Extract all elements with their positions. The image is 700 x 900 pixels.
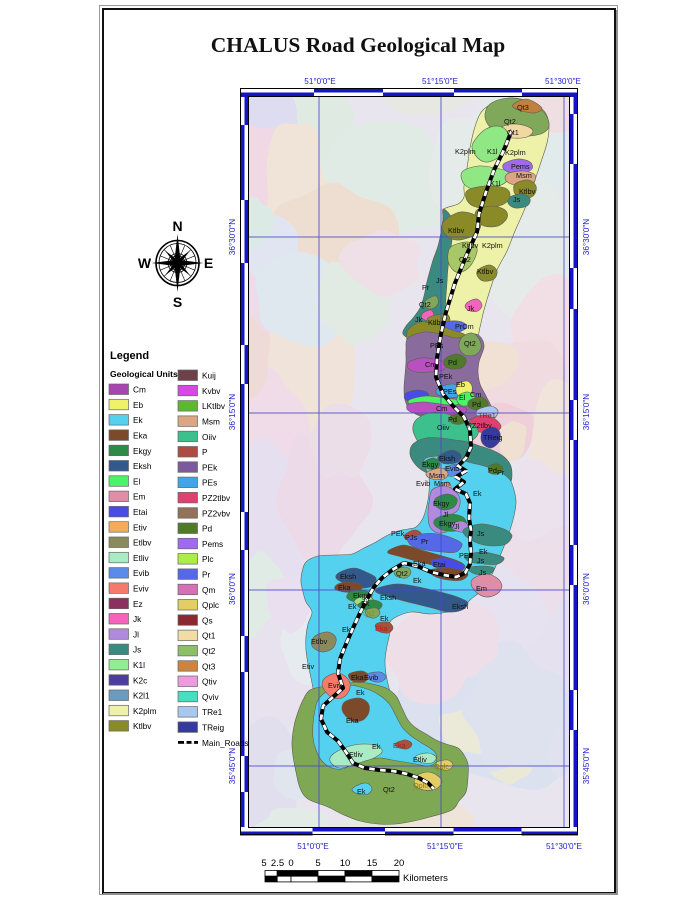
- svg-text:Eviv: Eviv: [328, 681, 342, 690]
- svg-text:P: P: [202, 447, 208, 457]
- svg-text:Ek: Ek: [372, 742, 381, 751]
- svg-text:Oiiv: Oiiv: [202, 432, 217, 442]
- svg-text:Qt1: Qt1: [202, 631, 216, 641]
- svg-text:Jl: Jl: [133, 629, 139, 639]
- svg-text:36°15'0"N: 36°15'0"N: [582, 394, 591, 431]
- svg-text:Eka: Eka: [133, 431, 148, 441]
- svg-text:Ktlbv: Ktlbv: [428, 318, 445, 327]
- svg-text:Ek: Ek: [133, 415, 144, 425]
- svg-text:Ktlbv: Ktlbv: [448, 226, 465, 235]
- svg-text:K1l: K1l: [133, 660, 145, 670]
- svg-text:Etiv: Etiv: [302, 662, 315, 671]
- svg-text:Msm: Msm: [434, 479, 450, 488]
- svg-text:Eka: Eka: [351, 673, 365, 682]
- svg-text:Pr: Pr: [422, 283, 430, 292]
- svg-text:TReig: TReig: [483, 433, 502, 442]
- svg-text:Pr: Pr: [497, 468, 505, 477]
- svg-text:Ez: Ez: [133, 599, 143, 609]
- svg-text:K2l1: K2l1: [133, 691, 150, 701]
- svg-text:Cm: Cm: [470, 390, 481, 399]
- svg-text:PrCm: PrCm: [455, 322, 474, 331]
- svg-text:36°30'0"N: 36°30'0"N: [582, 219, 591, 256]
- svg-text:Cm: Cm: [133, 385, 146, 395]
- svg-text:Msm: Msm: [202, 417, 220, 427]
- svg-text:2.5: 2.5: [271, 858, 284, 869]
- svg-text:Etlbv: Etlbv: [311, 637, 328, 646]
- svg-text:Eka: Eka: [338, 583, 352, 592]
- svg-text:0: 0: [288, 858, 293, 869]
- svg-text:LKtlbv: LKtlbv: [202, 401, 226, 411]
- svg-text:Ek: Ek: [479, 547, 488, 556]
- svg-text:Ek: Ek: [380, 614, 389, 623]
- svg-text:Eksh: Eksh: [133, 461, 152, 471]
- svg-text:Js: Js: [133, 645, 141, 655]
- svg-text:Ek: Ek: [473, 489, 482, 498]
- svg-text:Eviv: Eviv: [133, 584, 150, 594]
- svg-text:Main_Roads: Main_Roads: [202, 738, 249, 748]
- svg-text:K1l: K1l: [490, 179, 501, 188]
- svg-text:TRe1: TRe1: [202, 707, 223, 717]
- svg-text:Qt2: Qt2: [504, 117, 516, 126]
- svg-text:Ekgy: Ekgy: [433, 499, 450, 508]
- svg-text:Qt3: Qt3: [517, 103, 529, 112]
- svg-text:Js: Js: [513, 195, 521, 204]
- svg-text:5: 5: [261, 858, 266, 869]
- svg-text:Pems: Pems: [202, 539, 223, 549]
- svg-text:Etliv: Etliv: [413, 755, 427, 764]
- svg-text:15: 15: [367, 858, 378, 869]
- svg-text:El: El: [459, 393, 466, 402]
- svg-text:PEs: PEs: [202, 478, 217, 488]
- svg-text:Ktlbv: Ktlbv: [462, 241, 479, 250]
- svg-text:Plc: Plc: [202, 554, 214, 564]
- svg-text:Ktlbv: Ktlbv: [519, 187, 536, 196]
- svg-text:Jk: Jk: [415, 315, 423, 324]
- svg-text:Geological Units: Geological Units: [110, 369, 178, 379]
- svg-text:51°30'0"E: 51°30'0"E: [545, 77, 582, 86]
- svg-text:Ktlbv: Ktlbv: [477, 267, 494, 276]
- svg-text:N: N: [172, 218, 182, 234]
- svg-text:Pems: Pems: [511, 162, 530, 171]
- svg-text:Eka: Eka: [393, 741, 407, 750]
- svg-text:5: 5: [315, 858, 320, 869]
- svg-text:Jl: Jl: [454, 522, 460, 531]
- svg-text:Qt1: Qt1: [507, 128, 519, 137]
- svg-text:Eka: Eka: [413, 559, 427, 568]
- svg-text:PEs: PEs: [443, 387, 457, 396]
- svg-text:Eka: Eka: [375, 624, 389, 633]
- svg-text:Qs: Qs: [202, 615, 213, 625]
- svg-text:Em: Em: [133, 492, 146, 502]
- svg-text:Qt2: Qt2: [396, 569, 408, 578]
- svg-text:Eksh: Eksh: [452, 602, 468, 611]
- svg-text:35°45'0"N: 35°45'0"N: [582, 748, 591, 785]
- svg-text:PEs: PEs: [430, 341, 444, 350]
- svg-text:Cm: Cm: [425, 360, 436, 369]
- svg-text:Legend: Legend: [110, 350, 149, 362]
- svg-text:Kuij: Kuij: [202, 371, 216, 381]
- svg-text:Kvbv: Kvbv: [202, 386, 221, 396]
- svg-text:Etlbv: Etlbv: [133, 538, 152, 548]
- svg-text:Js: Js: [436, 276, 444, 285]
- svg-text:51°15'0"E: 51°15'0"E: [422, 77, 459, 86]
- svg-text:Qt2: Qt2: [202, 646, 216, 656]
- svg-text:S: S: [173, 294, 182, 310]
- svg-text:Ek: Ek: [348, 602, 357, 611]
- svg-text:Pd: Pd: [488, 466, 497, 475]
- svg-text:Js: Js: [479, 568, 487, 577]
- svg-text:Ktlbv: Ktlbv: [133, 721, 152, 731]
- svg-text:Eka: Eka: [346, 716, 360, 725]
- svg-text:Evib: Evib: [416, 479, 430, 488]
- svg-text:51°0'0"E: 51°0'0"E: [304, 77, 336, 86]
- svg-text:Evib: Evib: [364, 673, 378, 682]
- svg-text:K2plm: K2plm: [455, 147, 476, 156]
- svg-text:Qviv: Qviv: [202, 692, 219, 702]
- svg-text:Ek: Ek: [361, 599, 370, 608]
- svg-text:Ek: Ek: [342, 625, 351, 634]
- svg-text:Pd: Pd: [448, 358, 457, 367]
- svg-text:K2plm: K2plm: [482, 241, 503, 250]
- svg-text:Pd: Pd: [472, 400, 481, 409]
- svg-text:E: E: [204, 255, 213, 271]
- svg-text:Kilometers: Kilometers: [403, 873, 448, 884]
- svg-text:Qt2: Qt2: [459, 255, 471, 264]
- svg-text:PZ2vbv: PZ2vbv: [202, 508, 231, 518]
- svg-text:Js: Js: [477, 529, 485, 538]
- svg-text:Ek: Ek: [357, 787, 366, 796]
- svg-text:Ek: Ek: [356, 688, 365, 697]
- svg-text:TReig: TReig: [202, 723, 225, 733]
- svg-text:51°30'0"E: 51°30'0"E: [546, 842, 583, 851]
- svg-text:PZ2tlbv: PZ2tlbv: [467, 421, 492, 430]
- svg-text:Jk: Jk: [467, 304, 475, 313]
- svg-text:36°0'0"N: 36°0'0"N: [582, 573, 591, 605]
- svg-text:Pd: Pd: [448, 415, 457, 424]
- svg-text:Etai: Etai: [433, 560, 446, 569]
- svg-text:Qplc: Qplc: [434, 762, 449, 771]
- svg-text:Eksh: Eksh: [380, 593, 396, 602]
- svg-text:Ekgy: Ekgy: [422, 460, 439, 469]
- svg-text:Pr: Pr: [421, 537, 429, 546]
- svg-text:20: 20: [394, 858, 405, 869]
- svg-text:Cm: Cm: [436, 404, 447, 413]
- svg-text:Etliv: Etliv: [133, 553, 150, 563]
- svg-text:Evib: Evib: [133, 568, 150, 578]
- svg-text:Pd: Pd: [202, 524, 213, 534]
- svg-text:Etai: Etai: [133, 507, 147, 517]
- svg-text:K2plm: K2plm: [133, 706, 157, 716]
- svg-text:Jk: Jk: [133, 614, 142, 624]
- svg-text:Ekgy: Ekgy: [133, 446, 152, 456]
- svg-text:Qt2: Qt2: [363, 609, 375, 618]
- svg-text:Qt2: Qt2: [383, 785, 395, 794]
- svg-text:PZ2tlbv: PZ2tlbv: [202, 493, 231, 503]
- svg-text:10: 10: [340, 858, 351, 869]
- svg-text:PEk: PEk: [439, 372, 453, 381]
- svg-text:Qt2: Qt2: [464, 339, 476, 348]
- svg-text:Oiiv: Oiiv: [437, 423, 450, 432]
- svg-text:Qt3: Qt3: [202, 661, 216, 671]
- svg-text:Eb: Eb: [133, 400, 144, 410]
- svg-text:Msm: Msm: [516, 171, 532, 180]
- svg-text:Etiv: Etiv: [133, 522, 148, 532]
- svg-text:Etliv: Etliv: [349, 750, 363, 759]
- svg-text:TRe1: TRe1: [478, 411, 496, 420]
- svg-text:K2plm: K2plm: [505, 148, 526, 157]
- svg-text:PEk: PEk: [202, 462, 218, 472]
- svg-text:Qtiv: Qtiv: [202, 677, 218, 687]
- svg-text:Eb: Eb: [456, 380, 465, 389]
- svg-text:Eksh: Eksh: [340, 572, 356, 581]
- svg-text:K2c: K2c: [133, 675, 147, 685]
- svg-text:Qt2: Qt2: [419, 300, 431, 309]
- svg-text:W: W: [138, 255, 152, 271]
- svg-text:Evib: Evib: [445, 464, 459, 473]
- svg-text:Qm: Qm: [202, 585, 215, 595]
- svg-text:Js: Js: [477, 556, 485, 565]
- svg-text:Ek: Ek: [413, 576, 422, 585]
- svg-text:PEs: PEs: [459, 551, 473, 560]
- svg-text:Qplc: Qplc: [202, 600, 219, 610]
- svg-text:Em: Em: [476, 584, 487, 593]
- svg-text:Jl: Jl: [443, 510, 449, 519]
- svg-text:PEk: PEk: [391, 529, 405, 538]
- svg-text:El: El: [133, 476, 141, 486]
- svg-text:Qplc: Qplc: [413, 781, 428, 790]
- svg-text:Pr: Pr: [202, 570, 211, 580]
- svg-text:PJs: PJs: [405, 533, 418, 542]
- svg-text:Eksh: Eksh: [439, 454, 455, 463]
- svg-text:K1l: K1l: [487, 147, 498, 156]
